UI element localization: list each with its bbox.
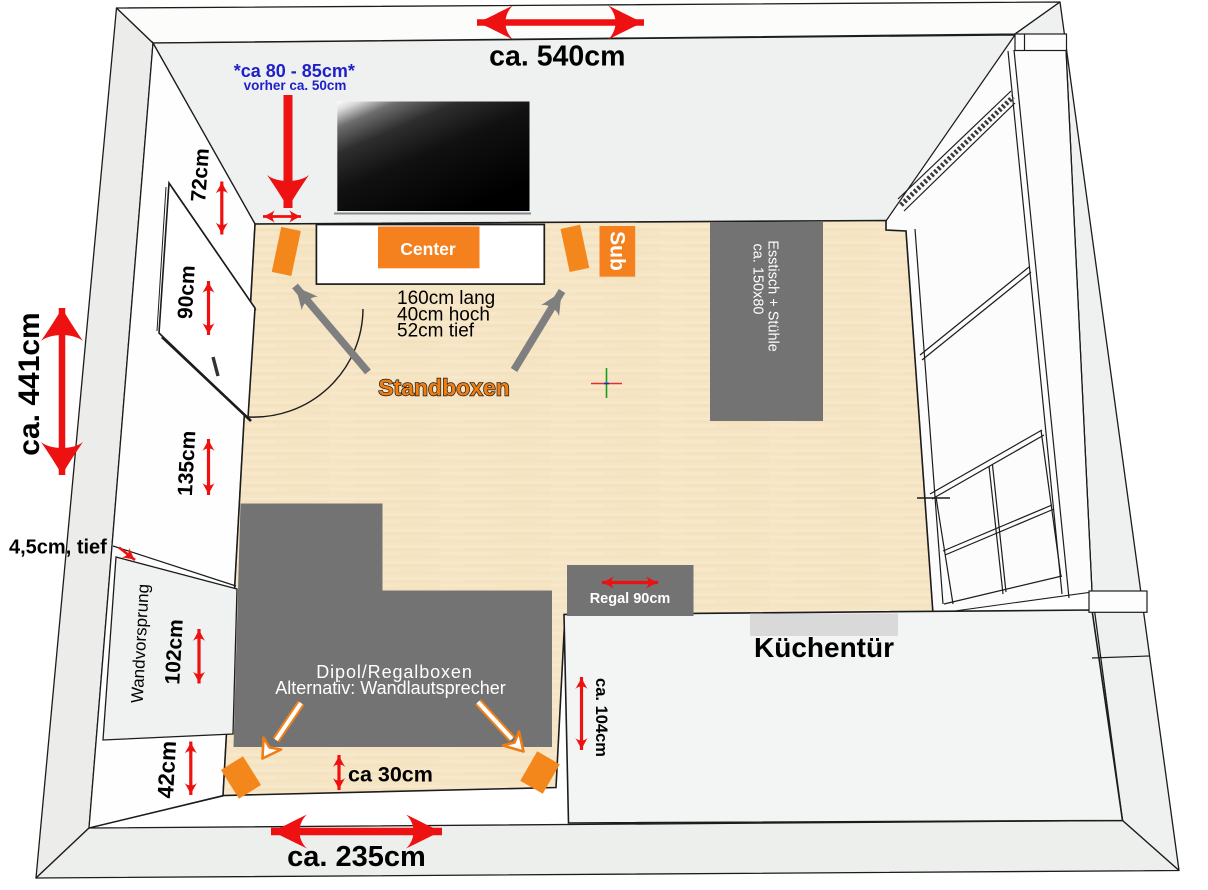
svg-text:ca. 150x80: ca. 150x80 [750, 244, 766, 315]
svg-text:ca. 441cm: ca. 441cm [13, 312, 46, 455]
svg-text:Küchentür: Küchentür [754, 632, 894, 663]
svg-text:Sub: Sub [606, 231, 629, 271]
svg-text:Regal 90cm: Regal 90cm [590, 591, 671, 607]
svg-text:52cm tief: 52cm tief [397, 321, 475, 342]
svg-text:135cm: 135cm [174, 430, 200, 497]
svg-text:Standboxen: Standboxen [378, 375, 510, 401]
svg-text:ca. 540cm: ca. 540cm [489, 41, 625, 73]
svg-text:4,5cm, tief: 4,5cm, tief [9, 537, 107, 559]
svg-text:Esstisch + Stühle: Esstisch + Stühle [765, 240, 781, 352]
svg-text:ca 30cm: ca 30cm [348, 763, 433, 787]
svg-text:ca. 104cm: ca. 104cm [592, 678, 610, 757]
svg-text:vorher ca. 50cm: vorher ca. 50cm [244, 78, 347, 93]
svg-text:ca. 235cm: ca. 235cm [287, 841, 426, 873]
svg-text:72cm: 72cm [187, 147, 214, 202]
svg-text:Center: Center [400, 239, 456, 259]
svg-text:102cm: 102cm [161, 619, 187, 686]
svg-text:90cm: 90cm [174, 265, 200, 320]
svg-text:Alternativ: Wandlautsprecher: Alternativ: Wandlautsprecher [275, 678, 505, 698]
svg-text:42cm: 42cm [153, 740, 181, 799]
